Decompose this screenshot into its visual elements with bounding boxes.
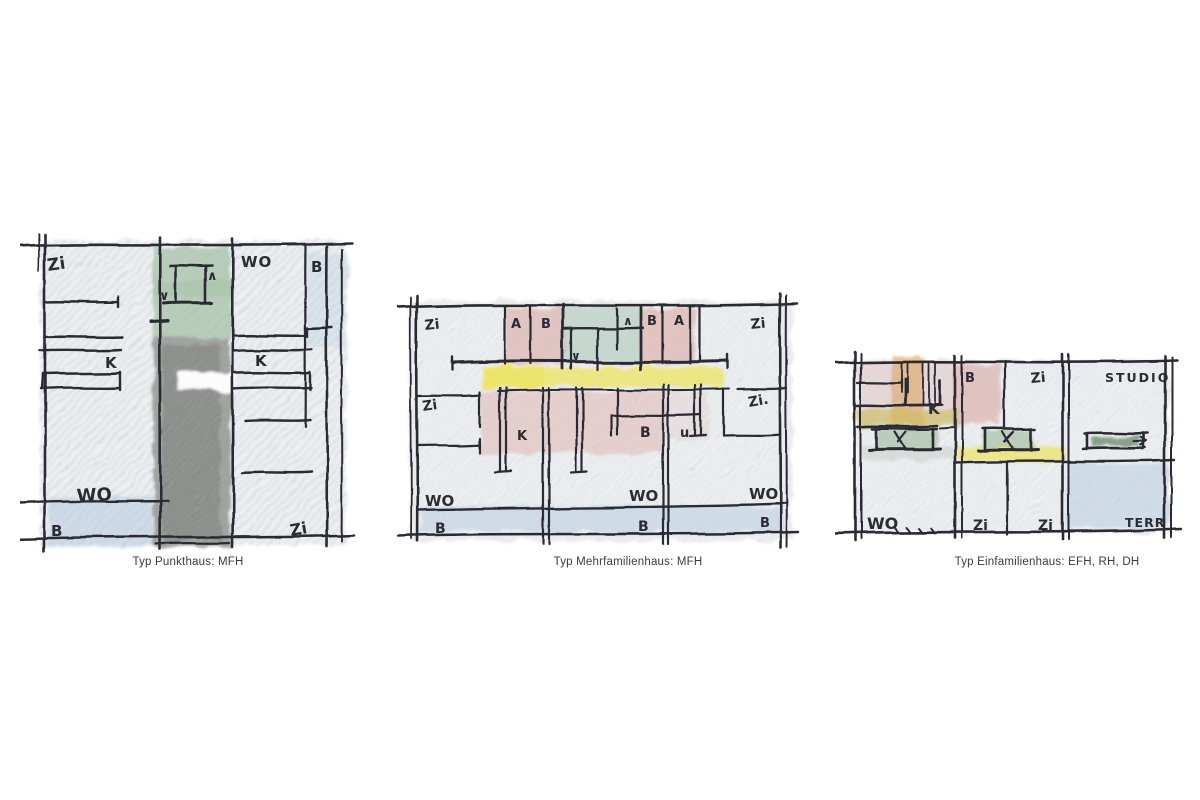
room-label-b-bottom-right: B xyxy=(760,516,770,531)
caption-einfamilienhaus: Typ Einfamilienhaus: EFH, RH, DH xyxy=(955,556,1140,568)
room-label-wo-top: WO xyxy=(241,253,272,271)
room-label-b-mid: B xyxy=(640,425,651,441)
core-white-box xyxy=(177,372,233,390)
unit-label-a-left: A xyxy=(511,317,521,332)
caption-punkthaus: Typ Punkthaus: MFH xyxy=(133,556,244,568)
up-arrow-icon: ∧ xyxy=(623,314,633,328)
room-label-k: K xyxy=(928,400,941,418)
room-label-zi-top: Zi xyxy=(46,254,67,276)
unit-label-b-right: B xyxy=(647,314,657,329)
room-label-b-top: B xyxy=(311,258,322,276)
sketch-einfamilienhaus: K B Zi STUDIO WO Zi Zi TERR xyxy=(835,345,1185,575)
olive-band xyxy=(858,409,958,427)
room-label-zi-bottom-left: Zi xyxy=(973,518,988,534)
down-arrow-icon: ∨ xyxy=(571,349,581,363)
sketch-mehrfamilienhaus: Zi A B B A Zi Zi Zi. K B u WO WO WO B B … xyxy=(395,285,805,575)
room-label-zi-top: Zi xyxy=(1030,370,1046,387)
room-label-zi-mid-left: Zi xyxy=(421,397,438,415)
room-label-wo-right: WO xyxy=(749,485,778,503)
room-label-zi-bottom: Zi xyxy=(288,518,308,540)
pink-shading-mid xyxy=(480,391,665,453)
room-label-b: B xyxy=(965,371,975,386)
unit-label-a-right: A xyxy=(674,314,684,329)
room-label-wo: WO xyxy=(867,514,898,533)
room-label-b-bottom-left: B xyxy=(435,521,446,537)
unit-label-b-left: B xyxy=(541,317,551,332)
room-label-k-mid: K xyxy=(517,429,528,444)
sketch-punkthaus: Zi WO B K K WO B Zi ∧ ∨ xyxy=(20,225,370,575)
room-label-zi-top-left: Zi xyxy=(424,317,441,334)
room-label-zi-top-right: Zi xyxy=(750,316,767,333)
room-label-u-mid: u xyxy=(680,426,689,441)
room-label-wo-mid: WO xyxy=(629,487,658,505)
room-label-zi-bottom-right: Zi xyxy=(1038,518,1053,534)
down-arrow-icon: ∨ xyxy=(159,289,170,304)
room-label-terr: TERR xyxy=(1125,515,1165,530)
room-label-wo-bottom: WO xyxy=(76,484,112,507)
room-label-k-left: K xyxy=(105,354,118,372)
canvas: Zi WO B K K WO B Zi ∧ ∨ xyxy=(0,0,1200,800)
up-arrow-icon: ∧ xyxy=(207,269,218,284)
room-label-b-bottom: B xyxy=(51,522,62,540)
room-label-k-right: K xyxy=(255,352,268,370)
caption-mehrfamilienhaus: Typ Mehrfamilienhaus: MFH xyxy=(554,556,703,568)
room-label-b-bottom-mid: B xyxy=(638,519,649,535)
room-label-studio: STUDIO xyxy=(1105,370,1170,385)
room-label-wo-left: WO xyxy=(425,492,454,510)
